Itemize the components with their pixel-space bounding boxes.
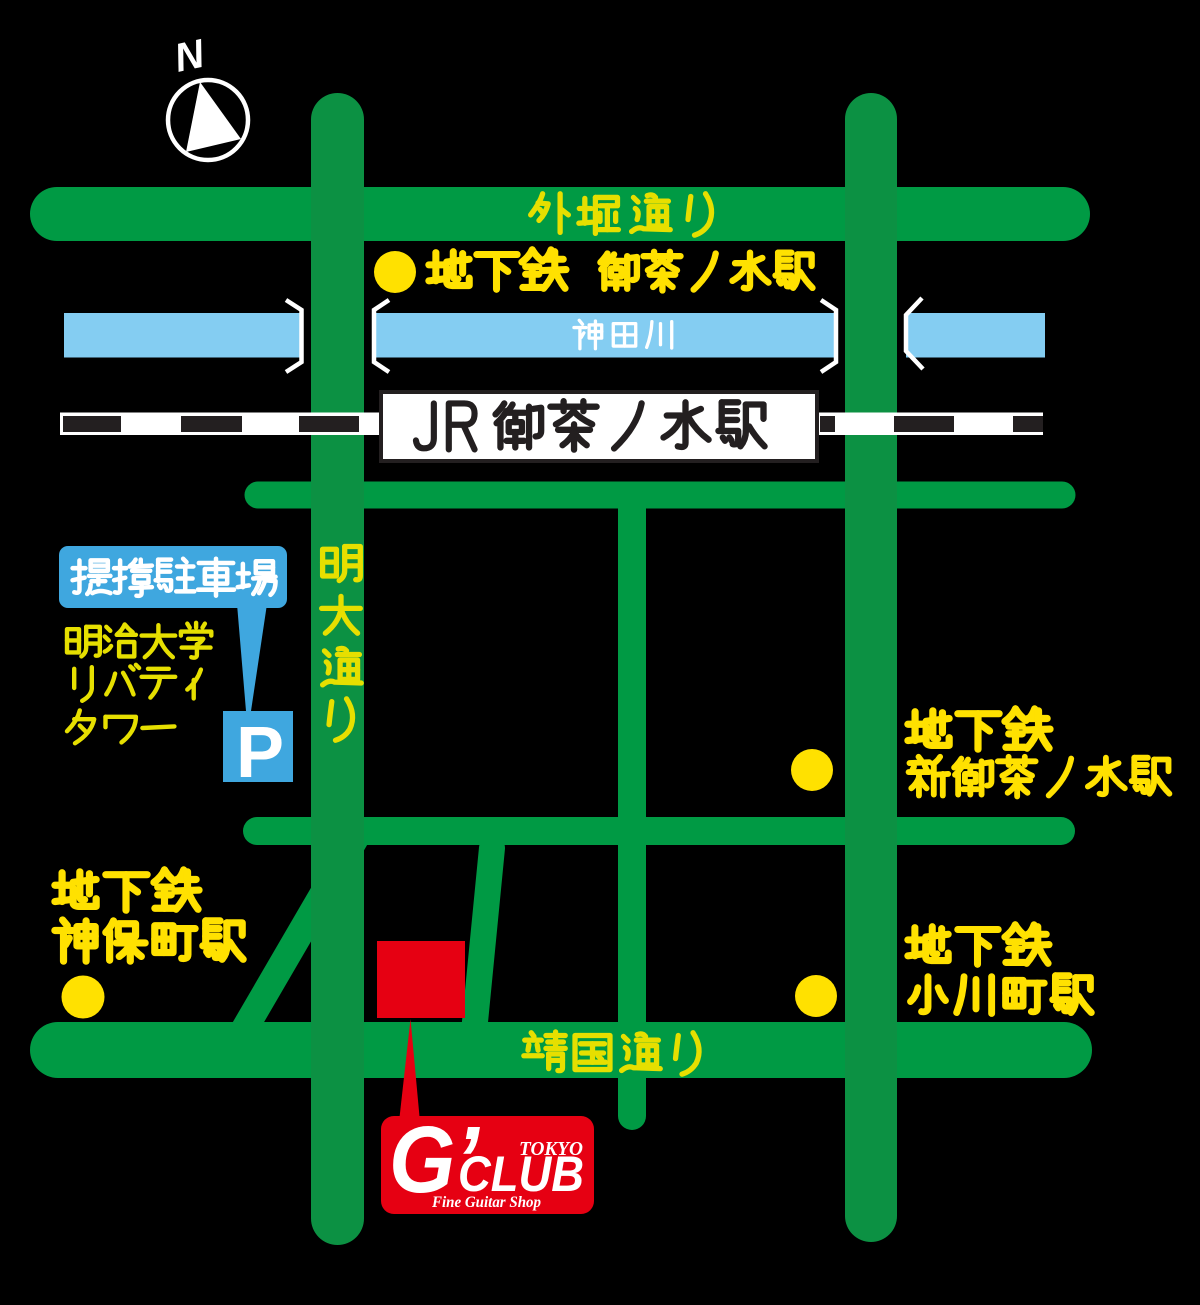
svg-text:Fine Guitar Shop: Fine Guitar Shop xyxy=(431,1194,541,1211)
svg-text:P: P xyxy=(236,713,284,793)
svg-text:TOKYO: TOKYO xyxy=(519,1138,583,1160)
